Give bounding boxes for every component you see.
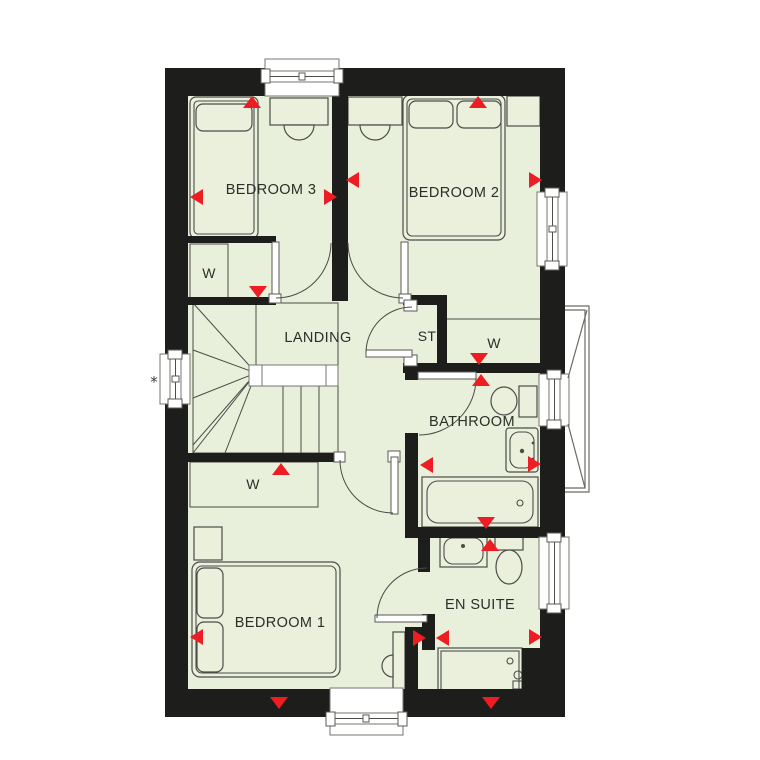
wall-segment: [188, 297, 276, 305]
dressing-table: [393, 632, 405, 697]
pillow: [409, 101, 453, 128]
bedroom1-label: BEDROOM 1: [235, 615, 326, 631]
window-bathroom-right: [539, 370, 569, 429]
wall-segment: [188, 236, 276, 243]
window-bottom: [326, 688, 407, 735]
wall-segment: [332, 236, 348, 301]
window-top: [261, 59, 343, 96]
store-label: ST: [418, 328, 437, 344]
bedroom3-label: BEDROOM 3: [226, 182, 317, 198]
wall-segment: [332, 96, 348, 236]
pillow: [196, 104, 252, 131]
wall-segment: [188, 453, 343, 462]
floorplan-page: BEDROOM 3 BEDROOM 2 LANDING ST W W W BED…: [0, 0, 760, 760]
wardrobe-bedroom2-label: W: [487, 335, 501, 351]
toilet-bowl: [491, 387, 517, 415]
landing-label: LANDING: [284, 330, 351, 346]
wall-segment: [405, 637, 418, 689]
bedroom2-label: BEDROOM 2: [409, 185, 500, 201]
wall-segment: [418, 538, 430, 572]
ensuite-label: EN SUITE: [445, 597, 515, 613]
window-ensuite-right: [539, 533, 569, 613]
window-left: [160, 350, 190, 408]
toilet-cistern: [495, 537, 523, 550]
bedside-table: [194, 527, 222, 560]
bathroom-label: BATHROOM: [429, 414, 515, 430]
wardrobe-bedroom1-label: W: [246, 476, 260, 492]
toilet-cistern: [519, 386, 537, 417]
bedside-table: [507, 96, 540, 126]
wall-segment: [405, 373, 418, 380]
floorplan-svg: BEDROOM 3 BEDROOM 2 LANDING ST W W W BED…: [0, 0, 760, 760]
wall-segment: [405, 433, 418, 538]
pillow: [197, 568, 223, 618]
wardrobe-bedroom3-label: W: [202, 265, 216, 281]
pillow: [197, 622, 223, 672]
wall-segment: [522, 648, 565, 717]
wall-segment: [437, 295, 447, 373]
dressing-table: [270, 98, 328, 125]
wall-segment: [405, 527, 542, 538]
wall-segment: [165, 68, 565, 96]
window-bedroom2-right: [537, 188, 567, 270]
footnote-asterisk: *: [150, 373, 158, 391]
dressing-table: [348, 97, 402, 125]
toilet-bowl: [496, 550, 522, 584]
stairs-handrail: [249, 365, 338, 386]
